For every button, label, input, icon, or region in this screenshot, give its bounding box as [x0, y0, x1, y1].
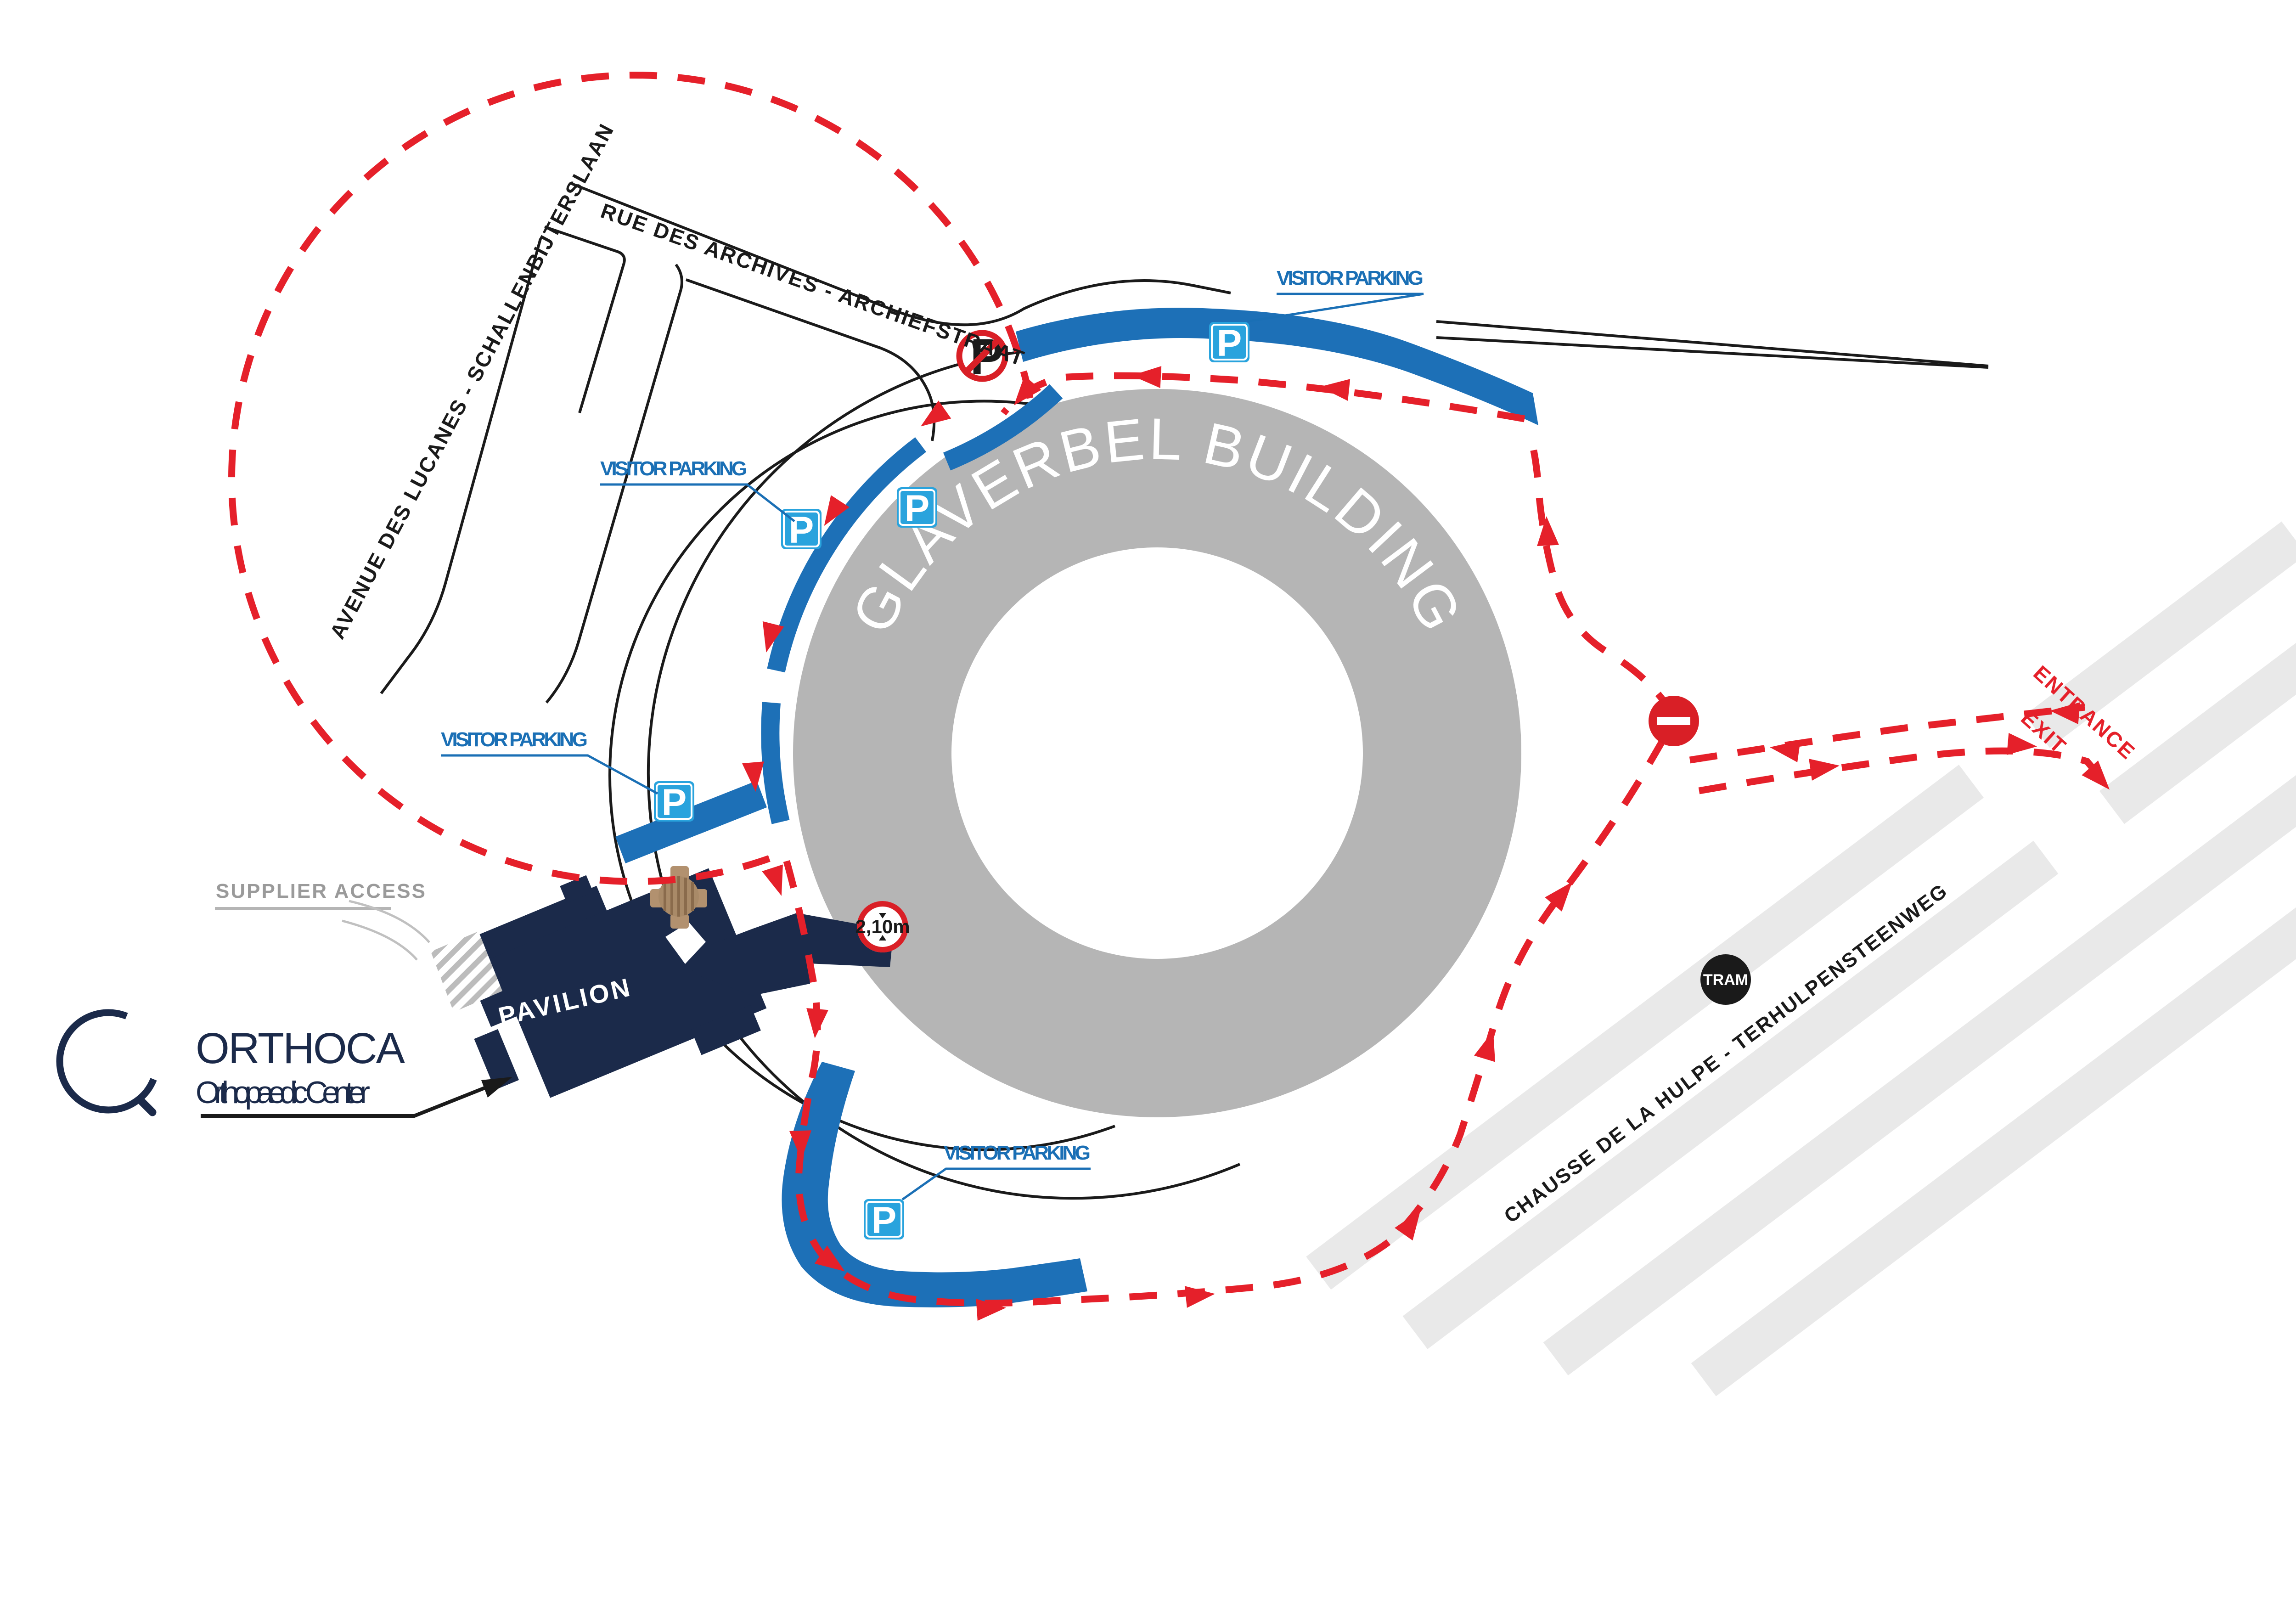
svg-text:2,10m: 2,10m — [855, 916, 910, 937]
svg-text:VISITOR PARKING: VISITOR PARKING — [944, 1142, 1091, 1164]
svg-text:VISITOR PARKING: VISITOR PARKING — [1277, 267, 1424, 289]
svg-text:ORTHOCA: ORTHOCA — [196, 1024, 414, 1073]
svg-text:TRAM: TRAM — [1703, 971, 1748, 989]
svg-text:Orthopaedic Center: Orthopaedic Center — [196, 1075, 370, 1110]
svg-text:SUPPLIER ACCESS: SUPPLIER ACCESS — [216, 880, 427, 902]
svg-text:VISITOR PARKING: VISITOR PARKING — [600, 457, 747, 480]
svg-text:VISITOR PARKING: VISITOR PARKING — [441, 728, 588, 751]
